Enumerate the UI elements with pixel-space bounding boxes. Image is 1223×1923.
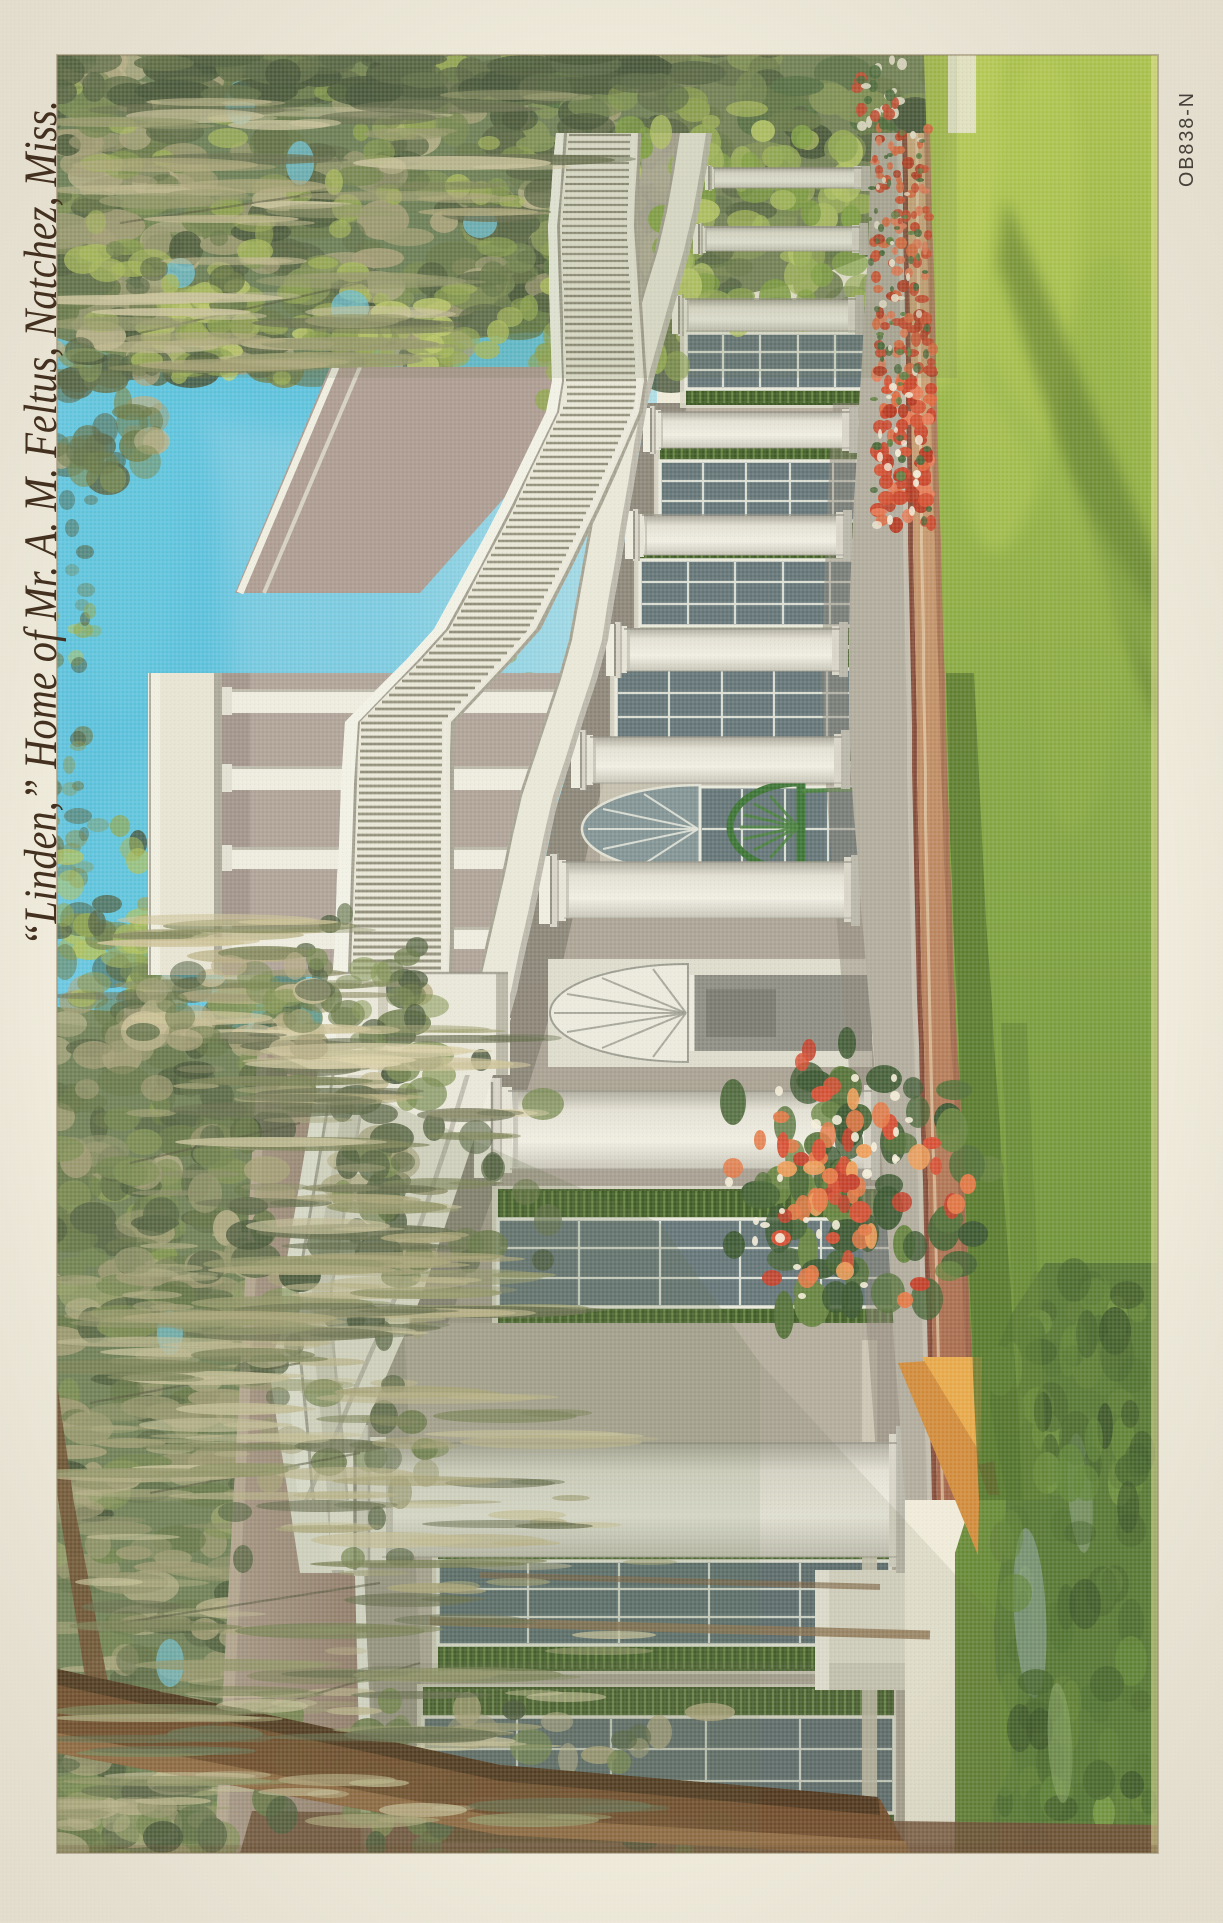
svg-text:“Linden,” Home of Mr. A. M. Fe: “Linden,” Home of Mr. A. M. Feltus, Natc… — [15, 100, 67, 946]
svg-text:OB838-N: OB838-N — [1176, 91, 1198, 187]
